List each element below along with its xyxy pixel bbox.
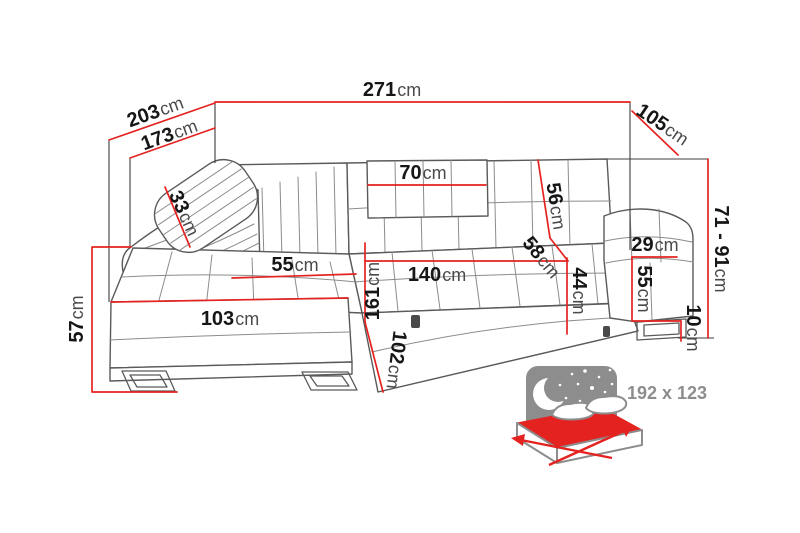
- dim-label-headrest-width: 70cm: [399, 162, 446, 184]
- diagram-canvas: 271cm 203cm 173cm 105cm 70cm 56cm 58cm 2…: [0, 0, 800, 533]
- dim-label-side-depth: 105cm: [632, 99, 693, 150]
- dim-label-armrest-width: 29cm: [631, 234, 678, 256]
- sleeping-area-label: 192 x 123: [627, 383, 707, 403]
- dim-label-leg-height: 10cm: [682, 304, 704, 351]
- dim-label-total-width: 271cm: [363, 79, 421, 101]
- dim-label-base-height: 57cm: [66, 295, 88, 342]
- sofa-dimension-diagram: 271cm 203cm 173cm 105cm 70cm 56cm 58cm 2…: [0, 0, 800, 533]
- dim-label-armrest-height: 55cm: [633, 265, 655, 312]
- rail-support-peg: [603, 326, 610, 337]
- dim-label-total-height: 71 - 91cm: [710, 205, 732, 292]
- dim-label-chaise-width: 55cm: [271, 254, 318, 276]
- sleeping-function-icon: 192 x 123: [511, 366, 707, 465]
- seat-hinge-peg: [411, 315, 420, 328]
- dim-label-chaise-length: 103cm: [201, 308, 259, 330]
- dim-label-seat-width: 140cm: [408, 264, 466, 286]
- armrest-leg-frame: [637, 319, 686, 340]
- dim-label-bed-length: 161cm: [362, 262, 384, 320]
- dim-label-seat-height: 44cm: [568, 267, 590, 314]
